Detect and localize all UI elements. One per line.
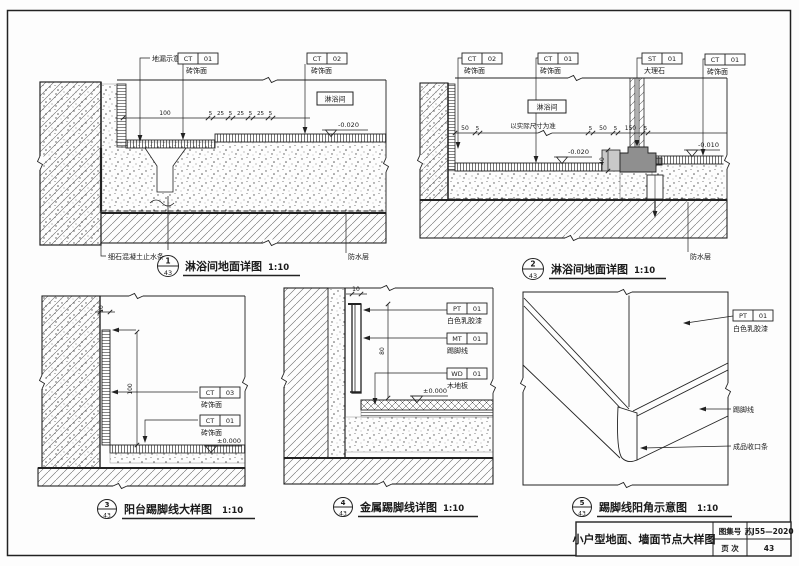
- detail-2-shower-threshold: CT 02 砖饰面 CT 01 砖饰面 ST 01 大理石 CT 01 砖饰面 …: [417, 53, 746, 280]
- dim-80-value: 80: [379, 347, 386, 355]
- tag-desc: 白色乳胶漆: [447, 316, 482, 325]
- tag-number: 01: [226, 417, 234, 425]
- skirting-tile: [102, 330, 110, 445]
- detail-scale: 1:10: [222, 506, 243, 516]
- detail-scale: 1:10: [634, 266, 655, 276]
- tag-desc: 砖饰面: [464, 66, 485, 75]
- tag-code: CT: [206, 417, 215, 425]
- tag-number: 01: [731, 56, 739, 64]
- wall-aggregate: [40, 82, 101, 245]
- tag-desc: 大理石: [644, 66, 665, 75]
- dim-5: 5: [249, 111, 253, 117]
- tag-number: 02: [488, 55, 496, 63]
- detail-sheet-no: 43: [529, 272, 537, 280]
- elevation-value: -0.020: [568, 148, 589, 156]
- dim-10: 10: [95, 305, 115, 314]
- metal-skirting-profile: [348, 304, 361, 393]
- detail-number: 4: [341, 499, 346, 507]
- detail-scale: 1:10: [443, 504, 464, 514]
- finish-tag-ct01: CT 01 砖饰面: [178, 53, 218, 140]
- tag-desc: 木地板: [447, 381, 468, 390]
- tag-number: 01: [473, 370, 481, 378]
- tag-desc: 砖饰面: [311, 66, 332, 75]
- detail-title-text: 淋浴间地面详图: [185, 259, 262, 273]
- waterproof-note: 防水层: [690, 252, 711, 261]
- tag-code: CT: [184, 55, 193, 63]
- dim-10-value: 10: [98, 305, 105, 313]
- wall-section: [284, 288, 328, 458]
- elevation-value: -0.020: [338, 121, 359, 129]
- drawing-sheet: 地漏示意 CT 01 砖饰面 CT 02 砖饰面 淋浴间 100 5 25 5 …: [0, 0, 799, 566]
- waterstop-note: 细石混凝土止水条: [108, 252, 164, 261]
- waterproof-note: 防水层: [348, 252, 369, 261]
- dim-100-value: 100: [127, 383, 134, 395]
- room-label-box: 淋浴间: [317, 92, 353, 105]
- wall-aggregate: [42, 296, 100, 468]
- tag-desc: 砖饰面: [186, 66, 207, 75]
- wall-aggregate: [420, 83, 448, 200]
- dim-row: 100 5 25 5 25 5 25 5: [121, 110, 310, 120]
- atlas-number-label: 图集号: [719, 526, 742, 536]
- page-number-value: 43: [764, 544, 774, 553]
- dim-5: 5: [269, 111, 273, 117]
- shower-floor-tile: [455, 163, 602, 171]
- tag-number: 01: [668, 55, 676, 63]
- dim-50: 50: [461, 125, 469, 132]
- atlas-number-value: 苏J55—2020: [744, 526, 793, 536]
- dim-5: 5: [644, 126, 648, 132]
- detail-title: 1 43 淋浴间地面详图 1:10: [158, 256, 301, 278]
- room-label-box: 淋浴间: [528, 100, 566, 113]
- dim-150: 150: [625, 125, 637, 132]
- dim-5: 5: [476, 126, 480, 132]
- detail-title-text: 踢脚线阳角示意图: [599, 500, 687, 514]
- dim-100: 100: [159, 110, 171, 117]
- tag-code: CT: [313, 55, 322, 63]
- dim-25: 25: [257, 111, 264, 117]
- dim-5: 5: [209, 111, 213, 117]
- sheet-canvas: 地漏示意 CT 01 砖饰面 CT 02 砖饰面 淋浴间 100 5 25 5 …: [0, 0, 799, 566]
- tag-desc: 砖饰面: [707, 67, 728, 76]
- sheet-title: 小户型地面、墙面节点大样图: [572, 532, 716, 546]
- elevation-value: -0.010: [698, 141, 719, 149]
- detail-title-text: 淋浴间地面详图: [551, 262, 628, 276]
- title-block: 小户型地面、墙面节点大样图 图集号 苏J55—2020 页 次 43: [572, 522, 794, 556]
- screed-shower: [448, 171, 620, 200]
- dim-50: 50: [599, 125, 607, 132]
- wall-tile: [117, 84, 126, 147]
- screed-layer: [345, 417, 493, 452]
- detail-5-skirting-corner: PT 01 白色乳胶漆 踢脚线 成品收口条 5 43 踢脚线阳角示意图 1:10: [520, 289, 774, 518]
- dim-5: 5: [614, 126, 618, 132]
- tag-desc: 踢脚线: [447, 346, 468, 355]
- room-label: 淋浴间: [325, 95, 346, 104]
- screed-layer: [110, 453, 245, 463]
- page-number-label: 页 次: [721, 543, 739, 553]
- detail-number: 5: [580, 499, 585, 507]
- tag-number: 02: [333, 55, 341, 63]
- detail-sheet-no: 43: [103, 513, 111, 520]
- elevation-value: ±0.000: [217, 437, 241, 445]
- shower-floor-tile: [126, 140, 215, 148]
- dim-5: 5: [229, 111, 233, 117]
- dim-5: 5: [589, 126, 593, 132]
- tag-code: ST: [648, 55, 656, 63]
- corner-trim-piece: [618, 407, 638, 462]
- actual-size-note: 以实际尺寸为准: [510, 121, 556, 130]
- tag-number: 01: [564, 55, 572, 63]
- drain-leader: [140, 58, 150, 140]
- dim-100: 100: [127, 330, 139, 447]
- detail-number: 3: [105, 501, 110, 509]
- detail-number: 2: [530, 260, 535, 269]
- tag-code: CT: [206, 389, 215, 397]
- detail-title-text: 金属踢脚线详图: [359, 500, 437, 514]
- finish-tag-pt01: PT 01 白色乳胶漆: [363, 303, 487, 325]
- detail-title: 3 43 阳台踢脚线大样图 1:10: [98, 500, 256, 520]
- tag-number: 01: [473, 335, 481, 343]
- dim-10: 10: [346, 286, 367, 296]
- detail-title: 5 43 踢脚线阳角示意图 1:10: [573, 498, 733, 518]
- dim-40: 40: [599, 157, 606, 165]
- elevation-marker-floor: -0.010: [684, 141, 720, 157]
- dim-row: 50 5 5 50 5 150 5: [453, 125, 727, 137]
- detail-title: 4 43 金属踢脚线详图 1:10: [334, 498, 479, 518]
- tag-code: PT: [453, 305, 461, 313]
- structural-slab: [38, 468, 245, 486]
- elevation-marker-shower: -0.020: [554, 148, 592, 164]
- floor-tile: [656, 156, 727, 164]
- door-frame-post: [630, 78, 635, 147]
- underlay-layer: [361, 410, 493, 417]
- trim-label-text: 成品收口条: [733, 442, 768, 451]
- floor-tile: [215, 134, 386, 142]
- dim-25: 25: [217, 111, 224, 117]
- skirting-label-text: 踢脚线: [733, 405, 754, 414]
- tag-desc: 砖饰面: [540, 66, 561, 75]
- elevation-value: ±0.000: [423, 387, 447, 395]
- structural-slab: [420, 200, 727, 238]
- door-frame-post: [639, 78, 644, 147]
- detail-title-text: 阳台踢脚线大样图: [124, 502, 212, 516]
- detail-sheet-no: 43: [339, 511, 347, 518]
- tag-number: 03: [226, 389, 234, 397]
- tag-code: PT: [739, 312, 747, 320]
- drain-note: 地漏示意: [152, 54, 180, 63]
- structural-slab: [284, 458, 493, 484]
- detail-sheet-no: 43: [578, 511, 586, 518]
- detail-sheet-no: 43: [164, 269, 172, 277]
- tag-number: 01: [759, 312, 767, 320]
- tag-desc: 砖饰面: [201, 428, 222, 437]
- plaster-layer: [328, 288, 345, 458]
- structural-slab: [101, 213, 386, 243]
- tag-number: 01: [204, 55, 212, 63]
- tag-number: 01: [473, 305, 481, 313]
- dim-25: 25: [237, 111, 244, 117]
- dim-80: 80: [379, 302, 390, 400]
- tag-code: WD: [451, 370, 462, 378]
- tag-desc: 白色乳胶漆: [733, 324, 768, 333]
- room-label: 淋浴间: [537, 103, 558, 112]
- detail-scale: 1:10: [268, 263, 289, 273]
- detail-4-metal-skirting: 10 80 PT 01 白色乳胶漆 MT 01 踢脚线 WD 01 木地板 ±0…: [281, 285, 497, 518]
- tag-desc: 砖饰面: [201, 400, 222, 409]
- detail-1-shower-floor: 地漏示意 CT 01 砖饰面 CT 02 砖饰面 淋浴间 100 5 25 5 …: [37, 53, 390, 277]
- dim-10-value: 10: [352, 286, 360, 293]
- detail-number: 1: [165, 257, 170, 266]
- wall-tile: [448, 84, 455, 170]
- detail-3-balcony-skirting: 10 100 CT 03 砖饰面 CT 01 砖饰面 ±0.000 3 43 阳…: [38, 293, 255, 520]
- tag-code: MT: [452, 335, 462, 343]
- tag-code: CT: [468, 55, 477, 63]
- detail-scale: 1:10: [697, 504, 718, 514]
- tag-code: CT: [544, 55, 553, 63]
- tag-code: CT: [711, 56, 720, 64]
- wood-floor: [361, 400, 493, 410]
- detail-title: 2 43 淋浴间地面详图 1:10: [523, 259, 667, 281]
